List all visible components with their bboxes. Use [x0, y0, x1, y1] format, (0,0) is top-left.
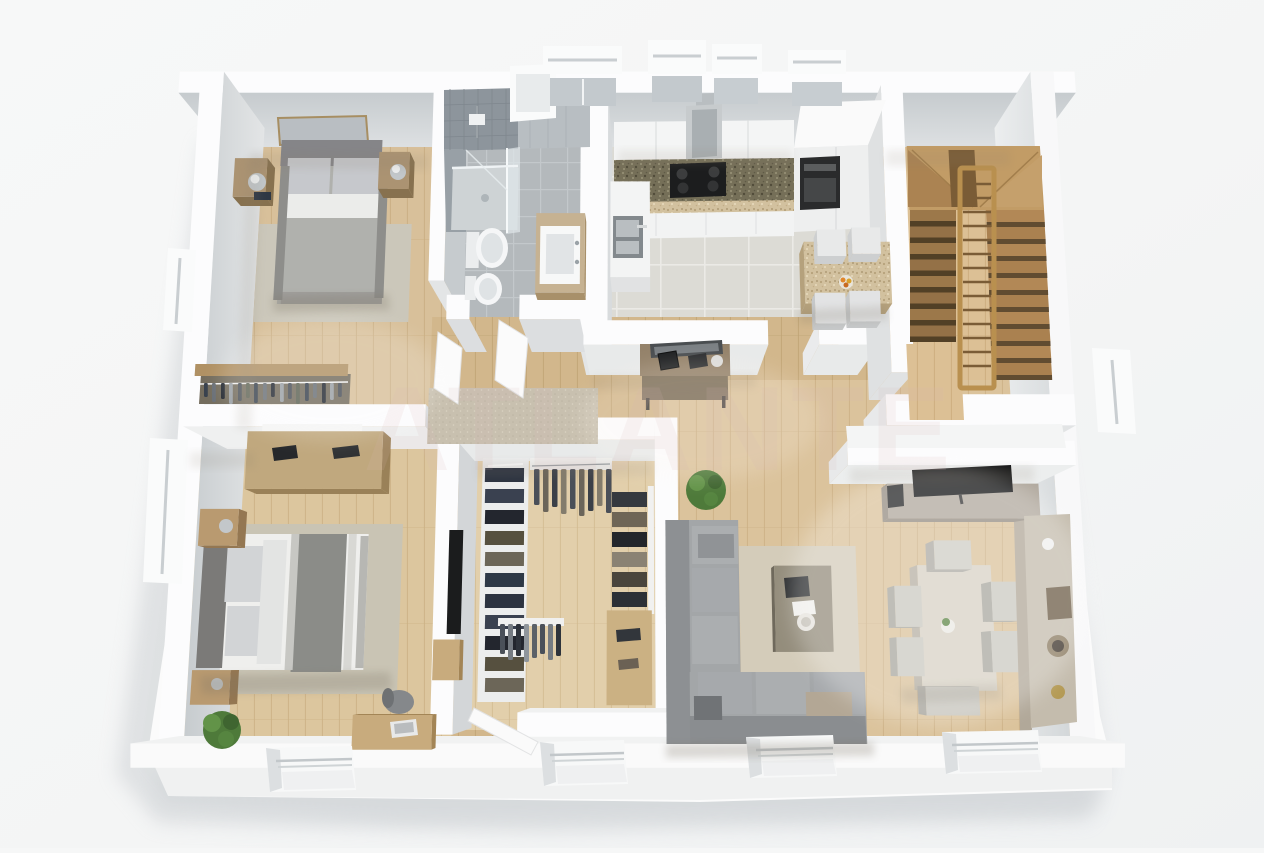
svg-text:ATLANTE: ATLANTE — [363, 362, 956, 496]
